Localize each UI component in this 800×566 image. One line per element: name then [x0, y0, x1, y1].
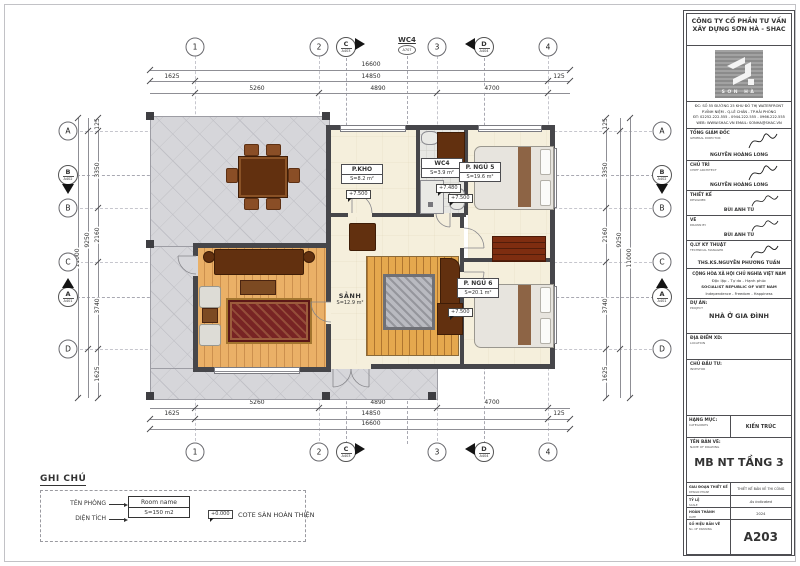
location-section: ĐỊA ĐIỂM XD:LOCATION — [687, 334, 791, 360]
section-arrow-icon — [465, 443, 475, 455]
section-ref: A404 — [479, 49, 488, 54]
level-value: +7.500 — [349, 191, 368, 197]
section-arrow-icon — [355, 38, 365, 50]
signature-icon — [741, 162, 781, 184]
project-label-en: PROJECT — [690, 306, 707, 310]
role-name: THS.KS.NGUYỄN PHƯƠNG TUẤN — [687, 261, 791, 266]
section-letter: D — [479, 445, 490, 454]
signature-icon — [741, 130, 781, 152]
section-marker-a: A A401 — [652, 287, 672, 307]
company-name-line2: XÂY DỰNG SƠN HÀ - SHAC — [687, 26, 791, 34]
level-tag: +7.500 — [448, 194, 473, 203]
section-marker-b: B A402 — [58, 165, 78, 185]
level-value: +7.480 — [439, 185, 458, 191]
grid-bubble-4: 4 — [539, 443, 558, 462]
date-row: HOÀN THÀNHDATE 2024 — [687, 508, 791, 520]
category-value: KIẾN TRÚC — [731, 416, 791, 437]
wc-callout: WC4 A707 — [398, 36, 416, 55]
section-letter: D — [479, 40, 490, 49]
section-ref: A402 — [657, 177, 666, 182]
role-row: THIẾT KẾDESIGNER BÙI ANH TÚ — [687, 191, 791, 216]
section-arrow-icon — [62, 184, 74, 194]
section-letter: B — [657, 168, 668, 177]
logo-section: SƠN HÀ — [687, 46, 791, 102]
grid-bubble-a: A — [653, 122, 672, 141]
room-label-wc: WC4 S=3.9 m² — [421, 158, 463, 178]
location-label-en: LOCATION — [690, 341, 723, 345]
callout-ref: A707 — [398, 45, 416, 55]
room-label-bedroom5: P. NGỦ 5 S=19.6 m² — [459, 162, 501, 182]
project-name: NHÀ Ở GIA ĐÌNH — [687, 312, 791, 320]
room-name: WC4 — [422, 159, 462, 169]
legend-area-label: DIỆN TÍCH — [58, 515, 106, 522]
grid-bubble-b: B — [59, 199, 78, 218]
company-logo: SƠN HÀ — [715, 50, 763, 98]
legend-area-value: S=150 m2 — [129, 508, 189, 517]
role-title-en: GENERAL DIRECTOR — [690, 136, 730, 140]
drawing-name-section: TÊN BẢN VẼ:NAME OF DRAWING MB NT TẦNG 3 — [687, 438, 791, 483]
company-section: CÔNG TY CỔ PHẦN TƯ VẤN XÂY DỰNG SƠN HÀ -… — [687, 14, 791, 46]
title-block: CÔNG TY CỔ PHẦN TƯ VẤN XÂY DỰNG SƠN HÀ -… — [683, 10, 795, 556]
section-arrow-icon — [62, 278, 74, 288]
grid-bubble-2: 2 — [310, 38, 329, 57]
legend-sample-box: Room name S=150 m2 — [128, 496, 190, 518]
cote-value: +0.000 — [211, 511, 230, 517]
legend-arrow-icon — [109, 519, 125, 520]
role-row: CHỦ TRÌCHIEF ARCHITECT NGUYỄN HOÀNG LONG — [687, 161, 791, 191]
address-line: ĐT: 02252.222.555 - 0944.222.555 - 0966.… — [687, 115, 791, 121]
motto-section: CỘNG HÒA XÃ HỘI CHỦ NGHĨA VIỆT NAM Độc l… — [687, 269, 791, 299]
date-value: 2024 — [731, 508, 791, 519]
role-title-en: DESIGNER — [690, 198, 712, 202]
section-letter: C — [341, 40, 352, 49]
grid-bubble-d: D — [59, 340, 78, 359]
section-marker-b: B A402 — [652, 165, 672, 185]
address-section: ĐC: SỐ 55 ĐƯỜNG 25 KHU ĐÔ THỊ WATERFRONT… — [687, 102, 791, 129]
drawing-name-value: MB NT TẦNG 3 — [687, 456, 791, 469]
level-tag: +7.500 — [448, 308, 473, 317]
logo-s-icon — [719, 52, 759, 88]
scale-label-en: SCALE — [689, 503, 728, 507]
investor-label-en: INVESTOR — [690, 367, 722, 371]
section-marker-d: D A404 — [474, 37, 494, 57]
phase-value: THIẾT KẾ BẢN VẼ THI CÔNG — [731, 483, 791, 495]
company-name-line1: CÔNG TY CỔ PHẦN TƯ VẤN — [687, 14, 791, 26]
section-ref: A403 — [341, 49, 350, 54]
grid-bubble-d: D — [653, 340, 672, 359]
section-arrow-icon — [355, 443, 365, 455]
level-tag: +7.480 — [436, 184, 461, 193]
drawing-name-label-en: NAME OF DRAWING — [690, 445, 721, 449]
drawing-number-label-en: No. OF DRAWING — [689, 527, 728, 531]
grid-bubble-a: A — [59, 122, 78, 141]
signature-icon — [745, 242, 781, 262]
section-letter: A — [657, 290, 668, 299]
role-row: TỔNG GIÁM ĐỐCGENERAL DIRECTOR NGUYỄN HOÀ… — [687, 129, 791, 161]
category-section: HẠNG MỤC:CATEGORIES KIẾN TRÚC — [687, 416, 791, 438]
grid-bubble-1: 1 — [186, 443, 205, 462]
grid-bubble-1: 1 — [186, 38, 205, 57]
section-ref: A404 — [479, 454, 488, 459]
room-area: S=20.1 m² — [458, 289, 498, 297]
investor-section: CHỦ ĐẦU TƯ:INVESTOR — [687, 360, 791, 416]
project-section: DỰ ÁN:PROJECT NHÀ Ở GIA ĐÌNH — [687, 299, 791, 334]
room-area: S=12.9 m² — [337, 300, 364, 306]
legend-arrow-icon — [109, 504, 125, 505]
room-name: P. NGỦ 6 — [458, 279, 498, 289]
motto-line: Independence - Freedom - Happiness — [687, 291, 791, 298]
section-letter: C — [341, 445, 352, 454]
drawing-number-value: A203 — [731, 520, 791, 554]
section-letter: A — [63, 290, 74, 299]
room-name: P. NGỦ 5 — [460, 163, 500, 173]
room-label-storage: P.KHO S=8.2 m² — [341, 164, 383, 184]
role-title-en: DRAWN BY — [690, 223, 706, 227]
legend-room-name-value: Room name — [129, 497, 189, 508]
callout-label: WC4 — [398, 36, 416, 44]
role-title-en: TECHNICAL MANAGER — [690, 248, 726, 252]
section-arrow-icon — [656, 184, 668, 194]
legend-cote-tag: +0.000 — [208, 510, 233, 519]
phase-row: GIAI ĐOẠN THIẾT KẾDESIGN PHASE THIẾT KẾ … — [687, 483, 791, 496]
grid-bubble-c: C — [653, 253, 672, 272]
room-label-bedroom6: P. NGỦ 6 S=20.1 m² — [457, 278, 499, 298]
phase-label-en: DESIGN PHASE — [689, 490, 728, 494]
role-name: BÙI ANH TÚ — [687, 233, 791, 238]
annotation-layer — [0, 0, 800, 566]
room-label-hall: SẢNH S=12.9 m² — [337, 292, 364, 306]
room-area: S=19.6 m² — [460, 173, 500, 181]
legend-title: GHI CHÚ — [40, 474, 86, 486]
room-name: SẢNH — [337, 292, 364, 300]
role-name: NGUYỄN HOÀNG LONG — [687, 153, 791, 158]
grid-bubble-4: 4 — [539, 38, 558, 57]
role-title-en: CHIEF ARCHITECT — [690, 168, 717, 172]
grid-bubble-3: 3 — [428, 38, 447, 57]
role-name: NGUYỄN HOÀNG LONG — [687, 183, 791, 188]
scale-value: As indicated — [731, 496, 791, 507]
legend-cote-label: COTE SÀN HOÀN THIỆN — [238, 511, 314, 519]
section-marker-c: C A403 — [336, 442, 356, 462]
room-name: P.KHO — [342, 165, 382, 175]
grid-bubble-c: C — [59, 253, 78, 272]
phase-label: GIAI ĐOẠN THIẾT KẾ — [689, 485, 728, 490]
level-value: +7.500 — [451, 195, 470, 201]
drawing-number-section: SỐ HIỆU BẢN VẼNo. OF DRAWING A203 — [687, 520, 791, 554]
motto-line: SOCIALIST REPUBLIC OF VIET NAM — [687, 284, 791, 291]
room-area: S=8.2 m² — [342, 175, 382, 183]
role-row: VẼDRAWN BY BÙI ANH TÚ — [687, 216, 791, 241]
section-marker-d: D A404 — [474, 442, 494, 462]
motto-line: CỘNG HÒA XÃ HỘI CHỦ NGHĨA VIỆT NAM — [687, 271, 791, 278]
grid-bubble-2: 2 — [310, 443, 329, 462]
grid-bubble-3: 3 — [428, 443, 447, 462]
room-area: S=3.9 m² — [422, 169, 462, 177]
section-arrow-icon — [656, 278, 668, 288]
role-name: BÙI ANH TÚ — [687, 208, 791, 213]
address-line: WEB: WWW.SHAC.VN EMAIL: SONHA@SHAC.VN — [687, 121, 791, 127]
category-label-en: CATEGORIES — [689, 423, 728, 427]
section-arrow-icon — [465, 38, 475, 50]
date-label-en: DATE — [689, 515, 728, 519]
section-marker-c: C A403 — [336, 37, 356, 57]
logo-text: SƠN HÀ — [715, 90, 763, 95]
section-ref: A403 — [341, 454, 350, 459]
address-line: ĐC: SỐ 55 ĐƯỜNG 25 KHU ĐÔ THỊ WATERFRONT — [687, 102, 791, 110]
drawing-sheet: 16600 1625 14850 125 5260 4890 4700 5260… — [0, 0, 800, 566]
level-tag: +7.500 — [346, 190, 371, 199]
legend-room-name-label: TÊN PHÒNG — [58, 500, 106, 507]
section-letter: B — [63, 168, 74, 177]
scale-row: TỶ LỆSCALE As indicated — [687, 496, 791, 508]
section-ref: A401 — [657, 299, 666, 304]
role-row: Q.LÝ KỸ THUẬTTECHNICAL MANAGER THS.KS.NG… — [687, 241, 791, 269]
section-ref: A401 — [63, 299, 72, 304]
section-marker-a: A A401 — [58, 287, 78, 307]
level-value: +7.500 — [451, 309, 470, 315]
section-ref: A402 — [63, 177, 72, 182]
grid-bubble-b: B — [653, 199, 672, 218]
